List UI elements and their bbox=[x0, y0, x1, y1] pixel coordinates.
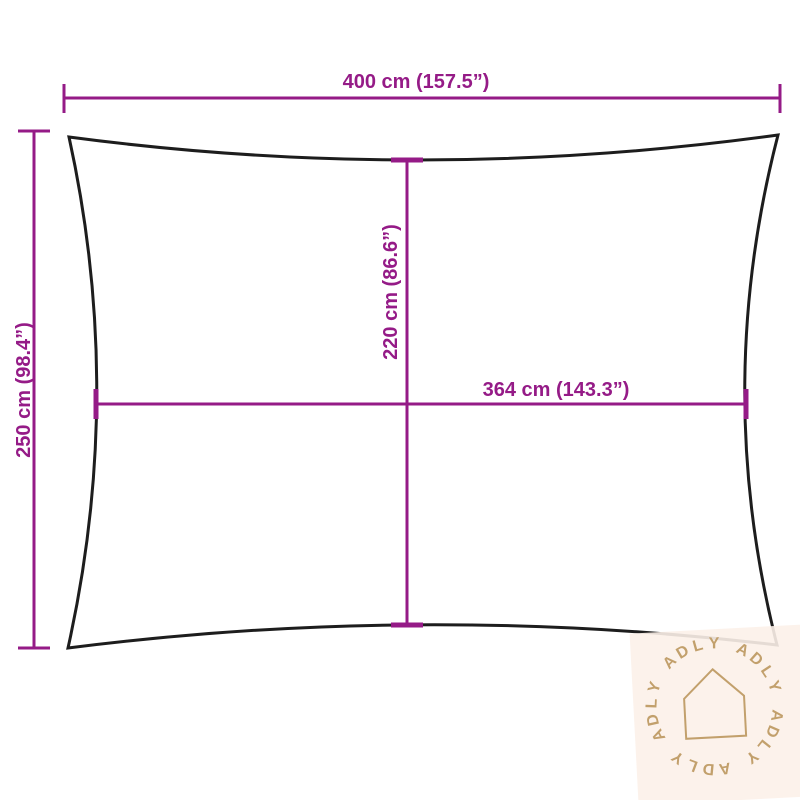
brand-watermark-letter: A bbox=[718, 759, 732, 777]
dimension-label-top-width: 400 cm (157.5”) bbox=[343, 71, 490, 93]
brand-watermark-letter: Y bbox=[709, 636, 720, 652]
brand-watermark: ADLYADLYADLYADLYADLY bbox=[630, 625, 800, 800]
dimension-label-left-height: 250 cm (98.4”) bbox=[13, 322, 35, 458]
dimension-center-width bbox=[96, 389, 746, 419]
dimension-label-center-height: 220 cm (86.6”) bbox=[380, 224, 402, 360]
dimension-label-center-width: 364 cm (143.3”) bbox=[483, 379, 630, 401]
brand-watermark-letter: D bbox=[702, 759, 715, 776]
brand-watermark-letter: L bbox=[644, 698, 660, 708]
brand-watermark-letter: A bbox=[767, 709, 785, 723]
product-diagram: 400 cm (157.5”) 250 cm (98.4”) 220 cm (8… bbox=[0, 0, 800, 800]
sail-outline bbox=[68, 135, 778, 648]
